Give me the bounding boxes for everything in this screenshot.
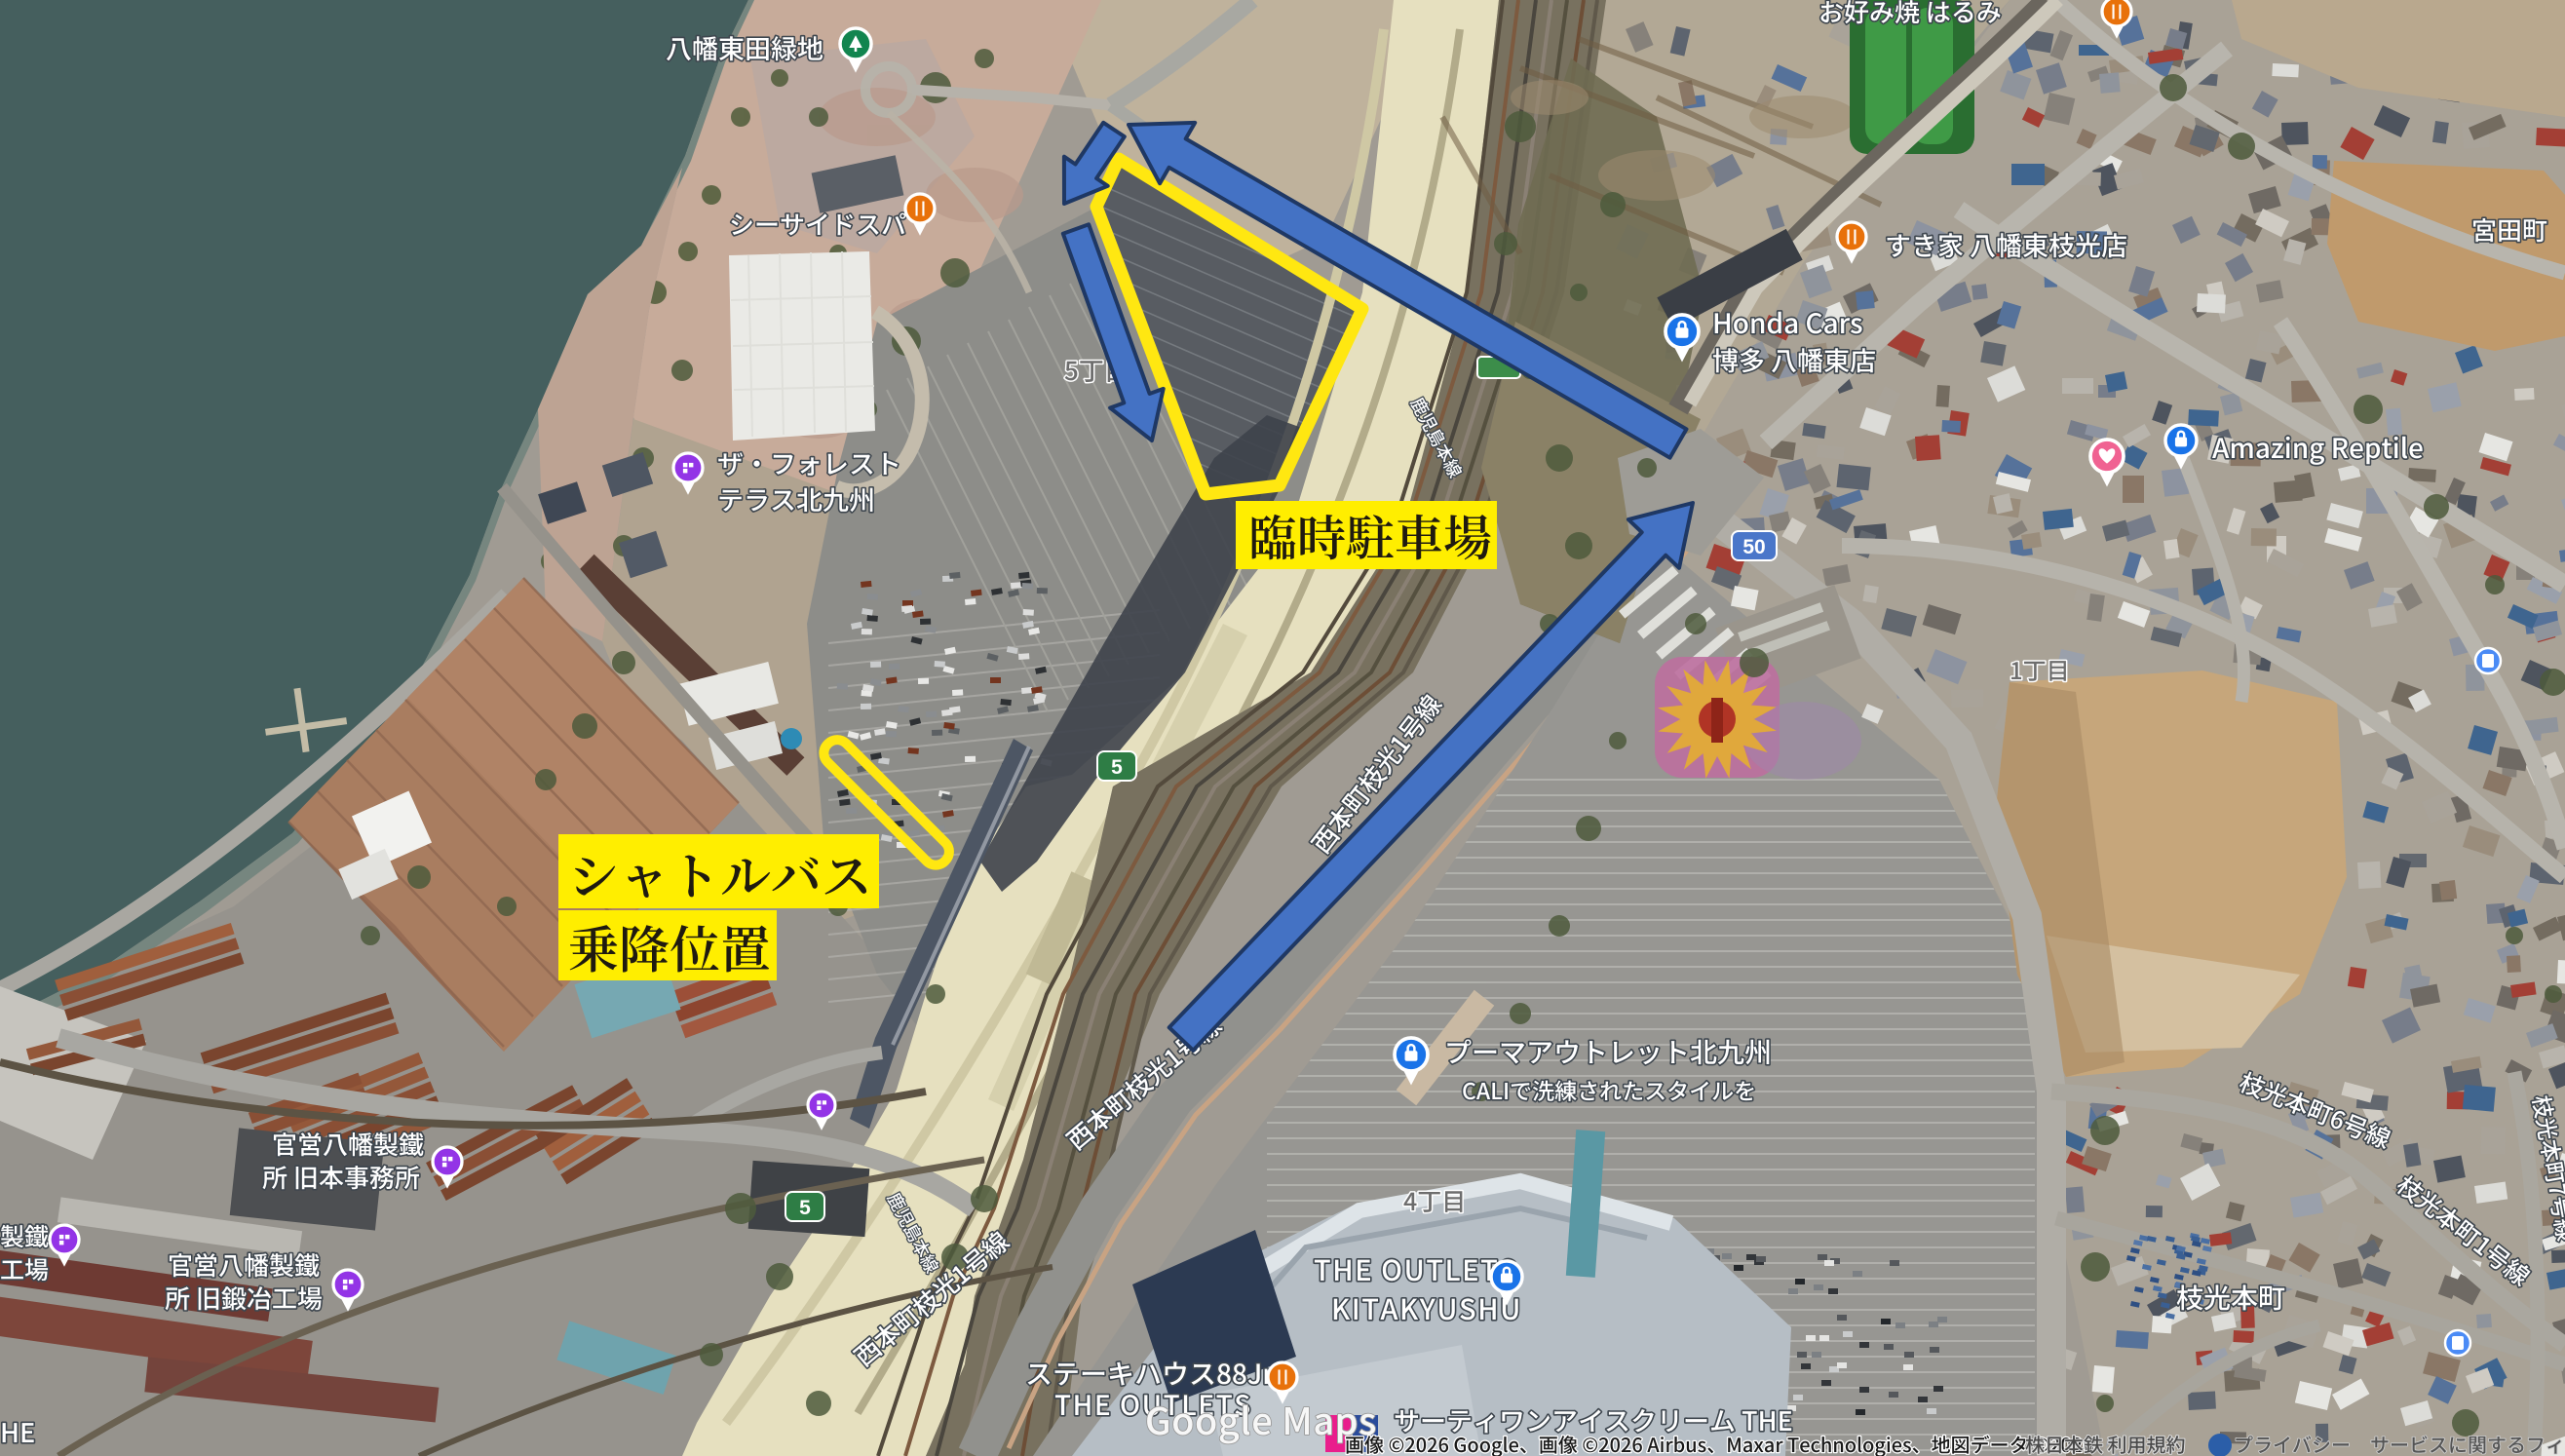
svg-text:5: 5	[1111, 756, 1123, 779]
svg-text:5: 5	[799, 1197, 811, 1219]
svg-text:50: 50	[1742, 536, 1765, 558]
